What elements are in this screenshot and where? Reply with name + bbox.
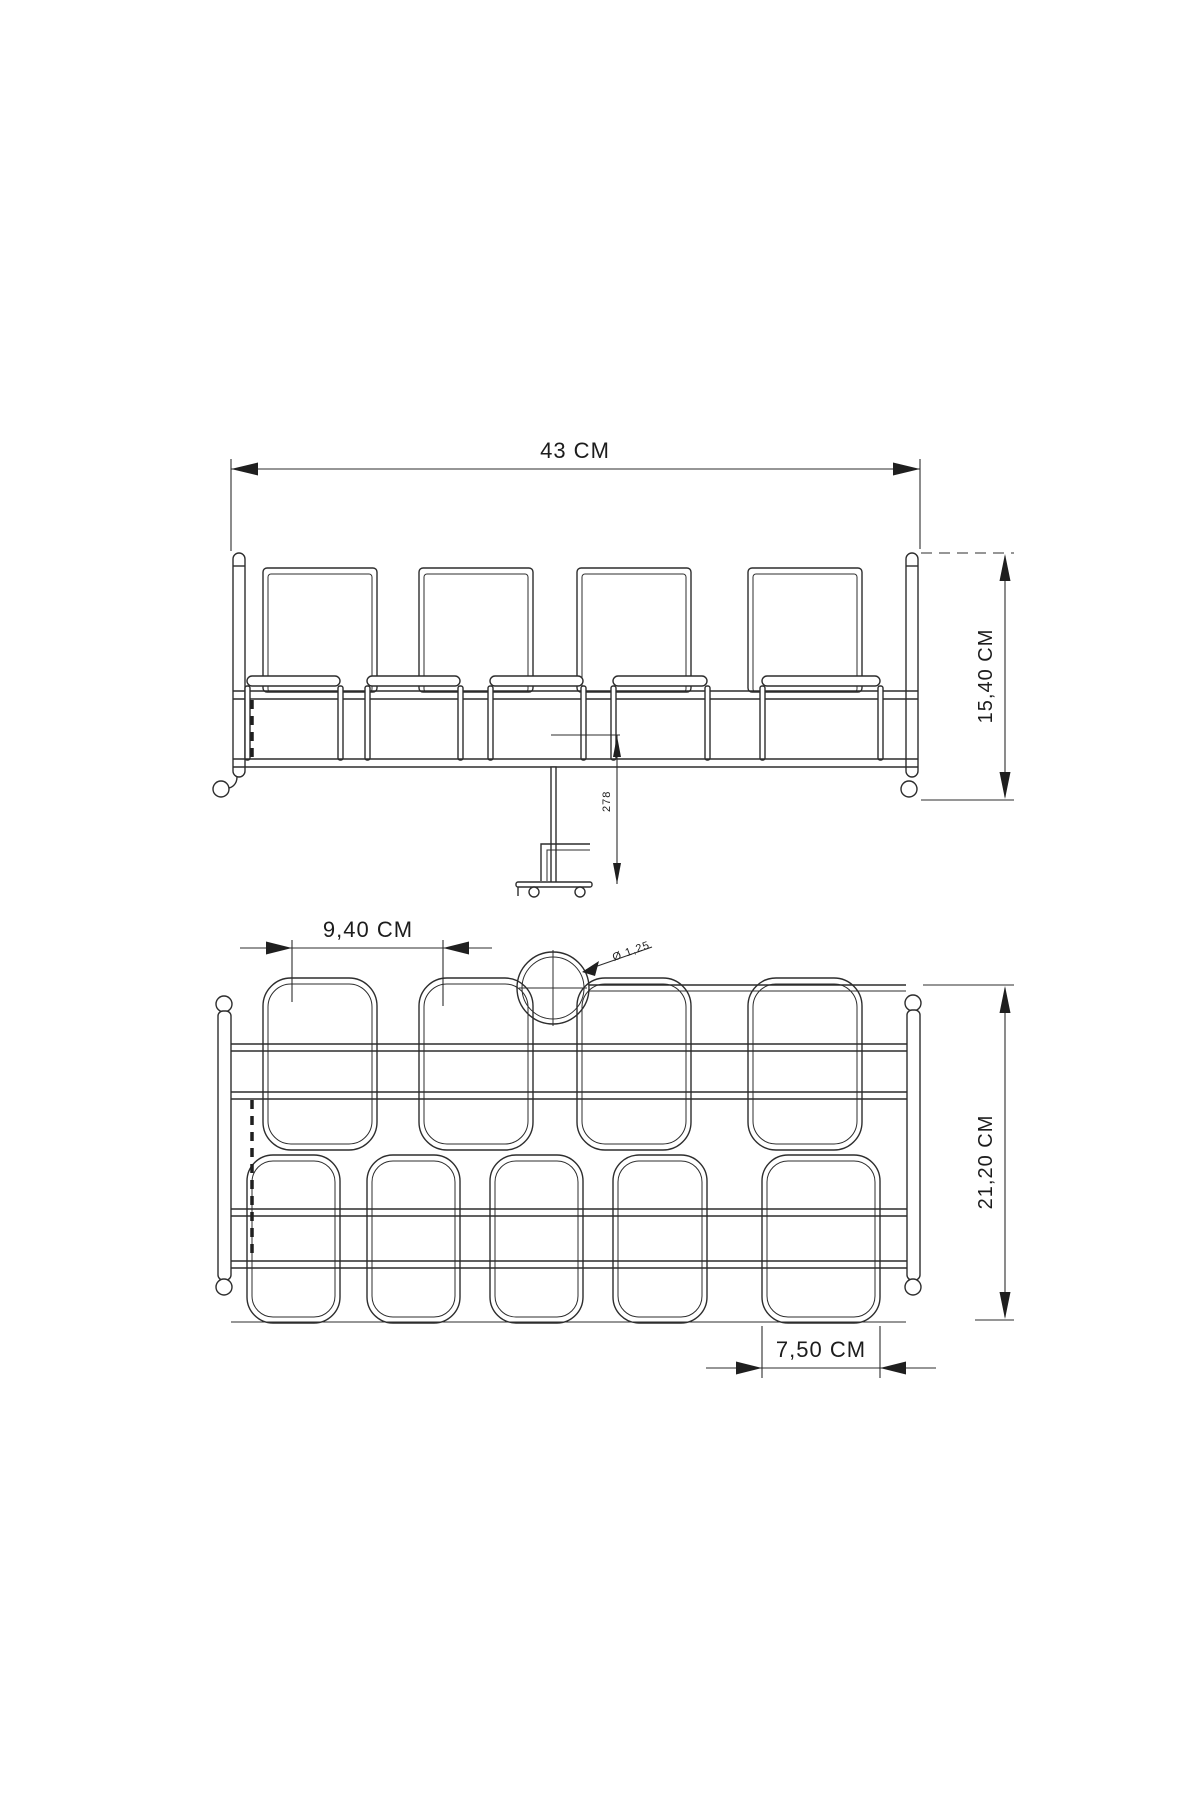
dim-front-height: 15,40 CM [921,553,1014,800]
right-post-plan [905,995,921,1295]
front-cup [613,1155,707,1323]
right-post-foot [901,781,917,797]
dim-pitch-label: 9,40 CM [323,917,413,942]
dim-front-height-label: 15,40 CM [975,629,997,724]
front-cup-rim [613,676,707,686]
back-cup [419,978,533,1150]
dim-cup-width: 7,50 CM [706,1326,936,1378]
dim-wire-diameter-label: Ø 1,25 [611,939,652,964]
plan-view: 9,40 CM Ø 1,25 [216,917,1014,1378]
technical-drawing: 43 CM [0,0,1200,1800]
dim-depth-label: 21,20 CM [975,1115,997,1210]
leader-arrow [582,961,599,976]
dim-cup-width-label: 7,50 CM [776,1337,866,1362]
front-view: 43 CM [213,438,1014,897]
front-cup-wires [245,686,883,760]
back-cup [263,978,377,1150]
back-hoop [419,568,533,692]
bracket-leg-wire [551,767,556,884]
back-hoop [577,568,691,692]
dim-arrow-left [231,463,258,476]
left-post-plan [216,996,232,1295]
dim-depth: 21,20 CM [923,985,1014,1320]
dim-front-width-label: 43 CM [540,438,610,463]
left-post-foot [213,781,229,797]
front-row-cups [247,1155,880,1323]
front-cup [490,1155,583,1323]
dim-bracket-height-label: 278 [601,791,613,812]
front-cup [367,1155,460,1323]
dim-pitch: 9,40 CM [240,917,492,1006]
back-hoop [748,568,862,692]
bracket-foot [575,887,585,897]
front-cup-rim [490,676,583,686]
back-cup [748,978,862,1150]
back-hoop [263,568,377,692]
dim-arrow-right [893,463,920,476]
front-cup [762,1155,880,1323]
back-hoops [263,568,862,692]
lower-rail [233,759,918,767]
front-cup-rim [367,676,460,686]
bracket-foot [529,887,539,897]
front-cup [247,1155,340,1323]
front-cup-rim [247,676,340,686]
front-cup-rim [762,676,880,686]
front-cup-rims [247,676,880,686]
rear-rail [589,985,906,991]
left-post [213,553,245,797]
plan-rails [231,1044,907,1268]
wire-circle-detail: Ø 1,25 [517,939,652,1026]
bracket-detail [516,767,592,897]
back-cup [577,978,691,1150]
right-post [901,553,918,797]
back-row-cups [263,978,862,1150]
dim-front-width: 43 CM [231,438,920,551]
bracket-feet-bar [516,882,592,887]
